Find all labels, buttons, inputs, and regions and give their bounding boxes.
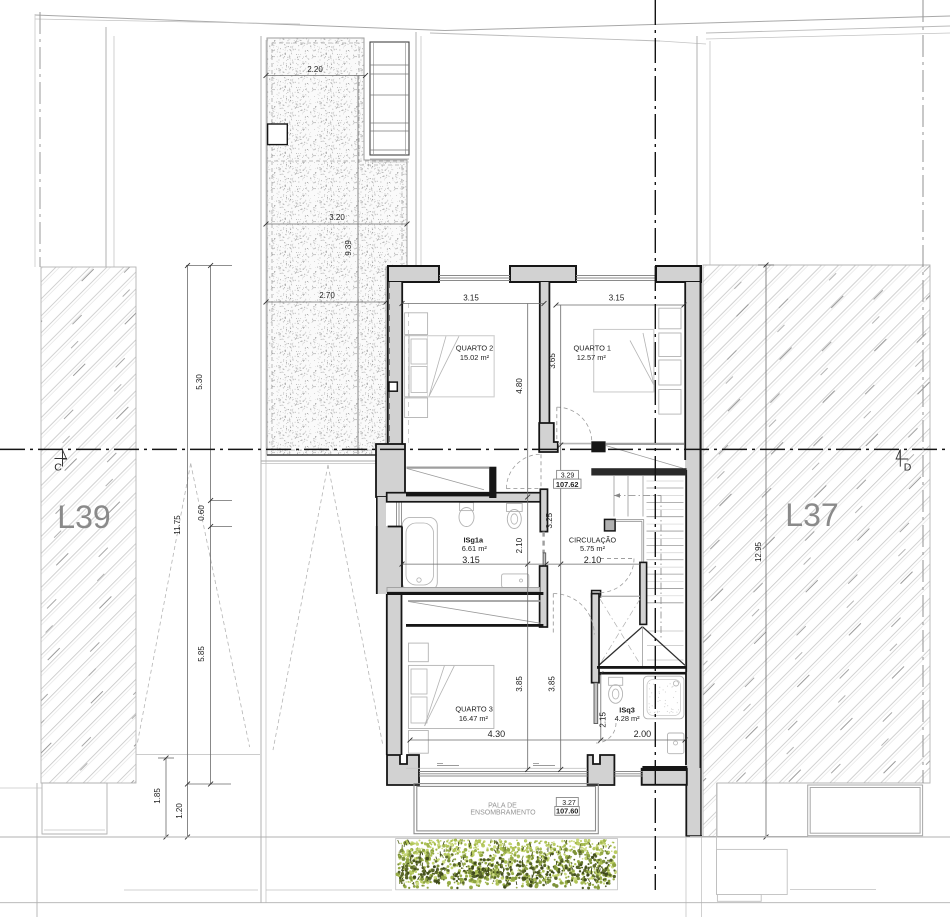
svg-text:L39: L39 <box>57 499 110 535</box>
svg-text:2.10: 2.10 <box>584 555 602 565</box>
svg-text:1.20: 1.20 <box>175 803 184 819</box>
svg-text:PALA DE: PALA DE <box>488 803 517 810</box>
svg-text:2.10: 2.10 <box>515 537 524 553</box>
svg-text:3.15: 3.15 <box>462 555 480 565</box>
svg-text:2.20: 2.20 <box>307 65 323 74</box>
svg-text:4.30: 4.30 <box>488 729 506 739</box>
svg-text:12.95: 12.95 <box>754 541 763 562</box>
svg-text:3.15: 3.15 <box>609 294 625 303</box>
svg-text:4.28 m²: 4.28 m² <box>615 714 641 723</box>
svg-text:L37: L37 <box>785 497 838 533</box>
svg-text:16.47 m²: 16.47 m² <box>459 714 489 723</box>
svg-text:3.15: 3.15 <box>463 294 479 303</box>
svg-text:QUARTO 1: QUARTO 1 <box>574 344 612 353</box>
svg-text:3.85: 3.85 <box>548 676 557 692</box>
svg-text:3.20: 3.20 <box>329 213 345 222</box>
svg-text:5.75 m²: 5.75 m² <box>580 544 606 553</box>
svg-text:3.65: 3.65 <box>548 353 557 369</box>
svg-text:3.85: 3.85 <box>515 676 524 692</box>
svg-text:2.15: 2.15 <box>599 712 608 728</box>
svg-text:QUARTO 2: QUARTO 2 <box>456 344 494 353</box>
svg-text:5.30: 5.30 <box>195 374 204 390</box>
svg-text:0.60: 0.60 <box>197 505 206 521</box>
svg-text:D: D <box>904 462 912 474</box>
svg-text:2.00: 2.00 <box>634 729 652 739</box>
svg-text:107.62: 107.62 <box>556 480 579 489</box>
svg-text:6.61 m²: 6.61 m² <box>462 544 488 553</box>
svg-text:2.70: 2.70 <box>319 291 335 300</box>
svg-text:15.02 m²: 15.02 m² <box>460 353 490 362</box>
svg-text:3.29: 3.29 <box>561 473 575 480</box>
svg-text:9.39: 9.39 <box>344 240 353 256</box>
svg-text:3.25: 3.25 <box>545 512 554 528</box>
svg-text:12.57 m²: 12.57 m² <box>577 353 607 362</box>
svg-text:1.85: 1.85 <box>153 788 162 804</box>
svg-text:11.75: 11.75 <box>173 515 182 535</box>
svg-text:QUARTO 3: QUARTO 3 <box>455 705 493 714</box>
svg-text:C: C <box>54 462 62 474</box>
svg-text:5.85: 5.85 <box>197 646 206 662</box>
svg-text:4.80: 4.80 <box>515 378 524 394</box>
svg-text:107.60: 107.60 <box>556 807 578 816</box>
svg-text:ENSOMBRAMENTO: ENSOMBRAMENTO <box>470 810 536 817</box>
